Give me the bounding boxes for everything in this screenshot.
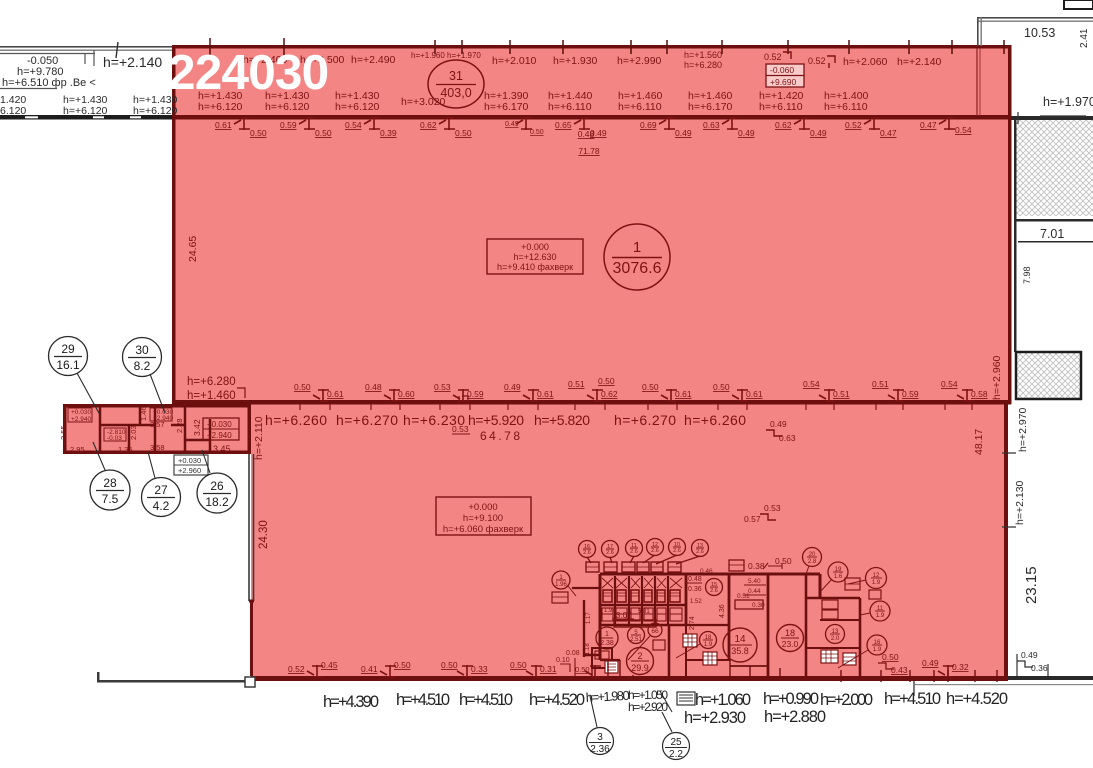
svg-text:h=+6.170: h=+6.170	[484, 101, 529, 113]
svg-text:3.58: 3.58	[150, 443, 165, 452]
svg-text:0.54: 0.54	[345, 120, 362, 130]
svg-text:0.52: 0.52	[764, 52, 782, 62]
svg-text:6.120: 6.120	[0, 105, 26, 117]
svg-text:h=+2.140: h=+2.140	[897, 56, 942, 68]
svg-text:64.78: 64.78	[480, 429, 520, 443]
svg-text:0.62: 0.62	[601, 389, 618, 399]
svg-text:0.48: 0.48	[688, 576, 702, 583]
svg-text:29.9: 29.9	[631, 663, 649, 673]
svg-text:+2.960: +2.960	[178, 466, 201, 475]
svg-text:h=+2.000: h=+2.000	[820, 691, 873, 709]
svg-text:h=+0.990: h=+0.990	[763, 690, 819, 708]
svg-text:31: 31	[449, 69, 463, 83]
svg-text:1.52: 1.52	[690, 599, 702, 605]
svg-text:0.30: 0.30	[752, 602, 765, 609]
svg-text:18.2: 18.2	[205, 495, 229, 509]
svg-text:3.57: 3.57	[150, 420, 165, 429]
svg-text:h=+2.880: h=+2.880	[764, 708, 826, 726]
svg-text:2.6: 2.6	[606, 550, 614, 556]
svg-text:1.98: 1.98	[604, 608, 616, 614]
svg-text:2.03: 2.03	[129, 425, 138, 440]
svg-text:23.15: 23.15	[1023, 566, 1040, 604]
svg-text:19: 19	[835, 567, 842, 573]
svg-text:1.9: 1.9	[704, 642, 713, 648]
svg-text:1.46: 1.46	[139, 406, 148, 421]
svg-text:0.46: 0.46	[700, 568, 713, 575]
svg-text:0.53: 0.53	[434, 382, 451, 392]
svg-text:h=+6.260: h=+6.260	[684, 412, 746, 428]
svg-text:h=+2.990: h=+2.990	[617, 55, 662, 67]
svg-text:26: 26	[210, 479, 224, 493]
svg-text:h=+6.170: h=+6.170	[688, 101, 733, 113]
svg-text:27: 27	[154, 483, 168, 497]
svg-text:+0.000: +0.000	[521, 242, 549, 252]
svg-text:2.74: 2.74	[689, 616, 696, 630]
svg-text:h=+5.920: h=+5.920	[468, 412, 524, 428]
svg-text:h=+6.110: h=+6.110	[759, 101, 803, 113]
svg-text:23.0: 23.0	[782, 639, 799, 649]
svg-text:0.61: 0.61	[327, 389, 344, 399]
svg-text:0.65: 0.65	[555, 120, 572, 130]
svg-text:h=+1.970: h=+1.970	[1043, 95, 1093, 109]
svg-text:0.49: 0.49	[504, 382, 521, 392]
svg-text:0.36: 0.36	[1031, 663, 1048, 673]
svg-text:1: 1	[633, 239, 641, 256]
svg-text:h=+6.510 фр .Ве <: h=+6.510 фр .Ве <	[2, 77, 96, 89]
svg-text:+9.690: +9.690	[770, 77, 797, 87]
svg-text:18: 18	[705, 635, 712, 641]
svg-text:h=+4.390: h=+4.390	[323, 693, 379, 711]
svg-text:+0.030: +0.030	[207, 420, 232, 429]
svg-text:18: 18	[785, 628, 795, 638]
svg-text:h=+6.270: h=+6.270	[614, 412, 676, 428]
svg-text:0.61: 0.61	[537, 389, 554, 399]
svg-text:0.69: 0.69	[640, 120, 657, 130]
svg-text:0.50: 0.50	[775, 556, 792, 566]
svg-text:0.63: 0.63	[779, 433, 796, 443]
svg-text:4.2: 4.2	[153, 499, 170, 513]
svg-text:0.61: 0.61	[746, 389, 763, 399]
svg-text:2.38: 2.38	[600, 640, 614, 647]
svg-text:+2.940: +2.940	[207, 431, 232, 440]
svg-text:0.50: 0.50	[394, 660, 411, 670]
svg-text:48.17: 48.17	[973, 429, 985, 455]
svg-text:0.61: 0.61	[675, 389, 692, 399]
svg-text:0.50: 0.50	[642, 382, 659, 392]
svg-text:0.50: 0.50	[510, 660, 527, 670]
svg-text:0.62: 0.62	[420, 120, 437, 130]
svg-text:0.49: 0.49	[810, 128, 827, 138]
svg-text:0.48: 0.48	[365, 382, 382, 392]
svg-text:2.6: 2.6	[630, 549, 638, 555]
svg-text:h=+2.490: h=+2.490	[351, 54, 396, 66]
svg-text:h=+6.270: h=+6.270	[336, 412, 398, 428]
svg-text:h=+4.520: h=+4.520	[529, 691, 585, 709]
svg-text:2.6: 2.6	[583, 550, 591, 556]
svg-text:+0.030: +0.030	[71, 409, 91, 416]
svg-text:-0.03: -0.03	[107, 435, 122, 442]
svg-text:h=+9.410 фахверк: h=+9.410 фахверк	[497, 262, 573, 272]
svg-text:5.81: 5.81	[638, 609, 650, 615]
svg-text:2.41: 2.41	[1079, 28, 1090, 48]
svg-text:0.45: 0.45	[321, 660, 338, 670]
svg-text:h=+2.110: h=+2.110	[253, 416, 265, 460]
svg-text:0.50: 0.50	[713, 382, 730, 392]
svg-text:0.50: 0.50	[294, 382, 311, 392]
svg-text:0.51: 0.51	[568, 379, 585, 389]
svg-text:4.36: 4.36	[719, 604, 726, 618]
svg-text:0.33: 0.33	[471, 664, 488, 674]
svg-text:0.50: 0.50	[250, 128, 267, 138]
svg-text:35.8: 35.8	[731, 646, 749, 656]
svg-text:0.50: 0.50	[598, 376, 615, 386]
svg-text:0.44: 0.44	[748, 588, 761, 595]
svg-text:0.49: 0.49	[738, 128, 755, 138]
svg-text:0.49: 0.49	[770, 419, 787, 429]
svg-text:7.5: 7.5	[102, 492, 119, 506]
svg-text:10.53: 10.53	[1024, 26, 1055, 40]
svg-text:2.6: 2.6	[696, 549, 704, 555]
svg-text:0.47: 0.47	[920, 120, 937, 130]
svg-text:2.28: 2.28	[175, 418, 184, 433]
svg-text:0.50: 0.50	[530, 129, 544, 136]
svg-text:0.52: 0.52	[288, 664, 305, 674]
svg-text:0.60: 0.60	[398, 389, 415, 399]
svg-text:0.51: 0.51	[833, 389, 850, 399]
svg-text:0.49: 0.49	[922, 658, 939, 668]
svg-text:h=+6.120: h=+6.120	[198, 101, 243, 113]
svg-text:h=+9.100: h=+9.100	[463, 513, 503, 524]
svg-text:h=+6.280: h=+6.280	[187, 376, 236, 388]
svg-text:3: 3	[597, 732, 603, 743]
svg-text:30: 30	[135, 343, 149, 357]
svg-text:3.42: 3.42	[192, 419, 202, 436]
svg-text:0.51: 0.51	[872, 379, 889, 389]
svg-text:0.08: 0.08	[566, 650, 580, 657]
svg-text:224030: 224030	[168, 45, 328, 100]
svg-text:h=+1.980: h=+1.980	[585, 688, 630, 705]
svg-text:h=+2.960: h=+2.960	[991, 355, 1003, 400]
svg-text:0.63: 0.63	[703, 120, 720, 130]
svg-text:0.57: 0.57	[744, 514, 761, 524]
svg-text:0.50: 0.50	[455, 128, 472, 138]
svg-text:0.10: 0.10	[556, 657, 570, 664]
svg-text:0.32: 0.32	[952, 662, 969, 672]
svg-text:1.9: 1.9	[872, 580, 881, 586]
svg-text:3076.6: 3076.6	[613, 260, 662, 277]
svg-text:3.45: 3.45	[213, 444, 231, 454]
svg-text:0.54: 0.54	[803, 379, 820, 389]
svg-text:2.36: 2.36	[590, 744, 610, 755]
svg-text:0.39: 0.39	[380, 128, 397, 138]
svg-text:3.55: 3.55	[59, 425, 68, 440]
svg-text:0.58: 0.58	[971, 389, 988, 399]
svg-text:1.9: 1.9	[873, 647, 882, 653]
svg-text:h=+1.560: h=+1.560	[684, 50, 722, 60]
svg-text:h=+2.010: h=+2.010	[492, 55, 537, 67]
svg-text:0.54: 0.54	[941, 379, 958, 389]
svg-text:h=+2.130: h=+2.130	[1014, 480, 1026, 525]
svg-text:20: 20	[809, 552, 816, 558]
svg-text:16: 16	[874, 640, 881, 646]
svg-text:h=+6.280: h=+6.280	[684, 60, 722, 70]
svg-text:0.38: 0.38	[748, 561, 765, 571]
svg-text:h=+5.820: h=+5.820	[534, 412, 590, 428]
svg-text:28: 28	[103, 476, 117, 490]
svg-text:0.62: 0.62	[775, 120, 792, 130]
svg-text:0.59: 0.59	[902, 389, 919, 399]
svg-text:0.49: 0.49	[590, 128, 607, 138]
svg-text:+2.940: +2.940	[71, 416, 91, 423]
svg-text:2.51: 2.51	[630, 637, 642, 643]
svg-text:h=+2.970: h=+2.970	[1017, 407, 1029, 452]
svg-text:11: 11	[877, 606, 884, 612]
svg-text:h=+6.260: h=+6.260	[265, 412, 327, 428]
svg-text:0.59: 0.59	[280, 120, 297, 130]
svg-text:1.6: 1.6	[834, 574, 843, 580]
svg-text:24.65: 24.65	[187, 236, 199, 262]
svg-text:66: 66	[651, 628, 659, 635]
svg-text:12: 12	[873, 573, 880, 579]
svg-text:2: 2	[637, 651, 642, 661]
svg-text:h=+4.510: h=+4.510	[459, 691, 513, 709]
svg-text:24.30: 24.30	[258, 520, 270, 549]
svg-text:0.50: 0.50	[441, 660, 458, 670]
svg-text:h=+2.930: h=+2.930	[684, 709, 746, 727]
svg-text:0.54: 0.54	[955, 125, 972, 135]
svg-text:0.47: 0.47	[880, 128, 897, 138]
svg-text:0.59: 0.59	[467, 389, 484, 399]
svg-text:h=+6.060 фахверк: h=+6.060 фахверк	[443, 524, 524, 535]
svg-text:2.6: 2.6	[710, 588, 718, 594]
svg-text:h=+1.960 h=+1.970: h=+1.960 h=+1.970	[411, 51, 481, 60]
svg-text:h=+4.510: h=+4.510	[884, 690, 941, 708]
svg-text:0.41: 0.41	[361, 664, 378, 674]
svg-text:0.49: 0.49	[675, 128, 692, 138]
svg-text:7.98: 7.98	[1022, 266, 1032, 284]
svg-text:-0.060: -0.060	[770, 65, 794, 75]
svg-text:7.01: 7.01	[1040, 227, 1064, 241]
svg-text:1.35: 1.35	[118, 445, 133, 454]
svg-text:8.2: 8.2	[134, 359, 151, 373]
svg-text:1.96: 1.96	[555, 582, 567, 588]
svg-text:h=+6.110: h=+6.110	[548, 101, 592, 113]
svg-text:h=+1.930: h=+1.930	[553, 55, 598, 67]
svg-text:h=+4.510: h=+4.510	[396, 691, 450, 709]
svg-text:13: 13	[832, 629, 839, 635]
svg-text:0.49: 0.49	[1021, 650, 1038, 660]
svg-text:1.18: 1.18	[585, 643, 591, 655]
svg-text:+0.000: +0.000	[468, 502, 497, 513]
svg-text:0.61: 0.61	[215, 120, 232, 130]
svg-text:h=+6.120: h=+6.120	[133, 105, 178, 117]
svg-text:h=+4.520: h=+4.520	[946, 690, 1008, 708]
svg-text:0.31: 0.31	[540, 664, 557, 674]
svg-text:2.6: 2.6	[673, 548, 681, 554]
svg-text:2.0: 2.0	[831, 636, 840, 642]
svg-text:0.43: 0.43	[891, 665, 908, 675]
svg-text:1: 1	[605, 631, 609, 638]
svg-text:+0.030: +0.030	[178, 456, 201, 465]
svg-text:0.52: 0.52	[808, 56, 826, 66]
svg-text:h=+6.120: h=+6.120	[335, 101, 380, 113]
svg-text:0.50: 0.50	[315, 128, 332, 138]
svg-text:2.95: 2.95	[70, 445, 85, 454]
svg-text:5.40: 5.40	[748, 578, 761, 585]
svg-text:0.50: 0.50	[882, 652, 899, 662]
svg-text:16.1: 16.1	[56, 358, 80, 372]
svg-text:0.52: 0.52	[845, 120, 862, 130]
svg-text:h=+3.020: h=+3.020	[401, 96, 446, 108]
svg-text:h=+2.140: h=+2.140	[103, 54, 162, 70]
svg-text:2.8: 2.8	[808, 559, 817, 565]
svg-text:0.53: 0.53	[764, 503, 781, 513]
svg-text:14: 14	[734, 634, 746, 645]
svg-text:0.53: 0.53	[452, 424, 469, 434]
svg-text:h=+1.060: h=+1.060	[695, 691, 751, 709]
svg-text:h=+6.110: h=+6.110	[618, 101, 662, 113]
svg-text:h=+6.120: h=+6.120	[63, 105, 108, 117]
svg-text:25: 25	[670, 737, 682, 748]
svg-text:2.2: 2.2	[669, 749, 683, 760]
svg-text:0.36: 0.36	[688, 586, 702, 593]
svg-text:h=+6.120: h=+6.120	[265, 101, 310, 113]
svg-text:h=+1.460: h=+1.460	[187, 390, 236, 402]
svg-text:h=+2.060: h=+2.060	[843, 56, 888, 68]
svg-text:1.17: 1.17	[586, 612, 592, 624]
svg-text:h=+12.630: h=+12.630	[513, 252, 556, 262]
svg-text:1.9: 1.9	[876, 613, 885, 619]
svg-text:29: 29	[61, 342, 75, 356]
svg-text:2.6: 2.6	[651, 548, 659, 554]
svg-text:h=+6.110: h=+6.110	[824, 101, 868, 113]
svg-text:71.78: 71.78	[578, 146, 600, 156]
